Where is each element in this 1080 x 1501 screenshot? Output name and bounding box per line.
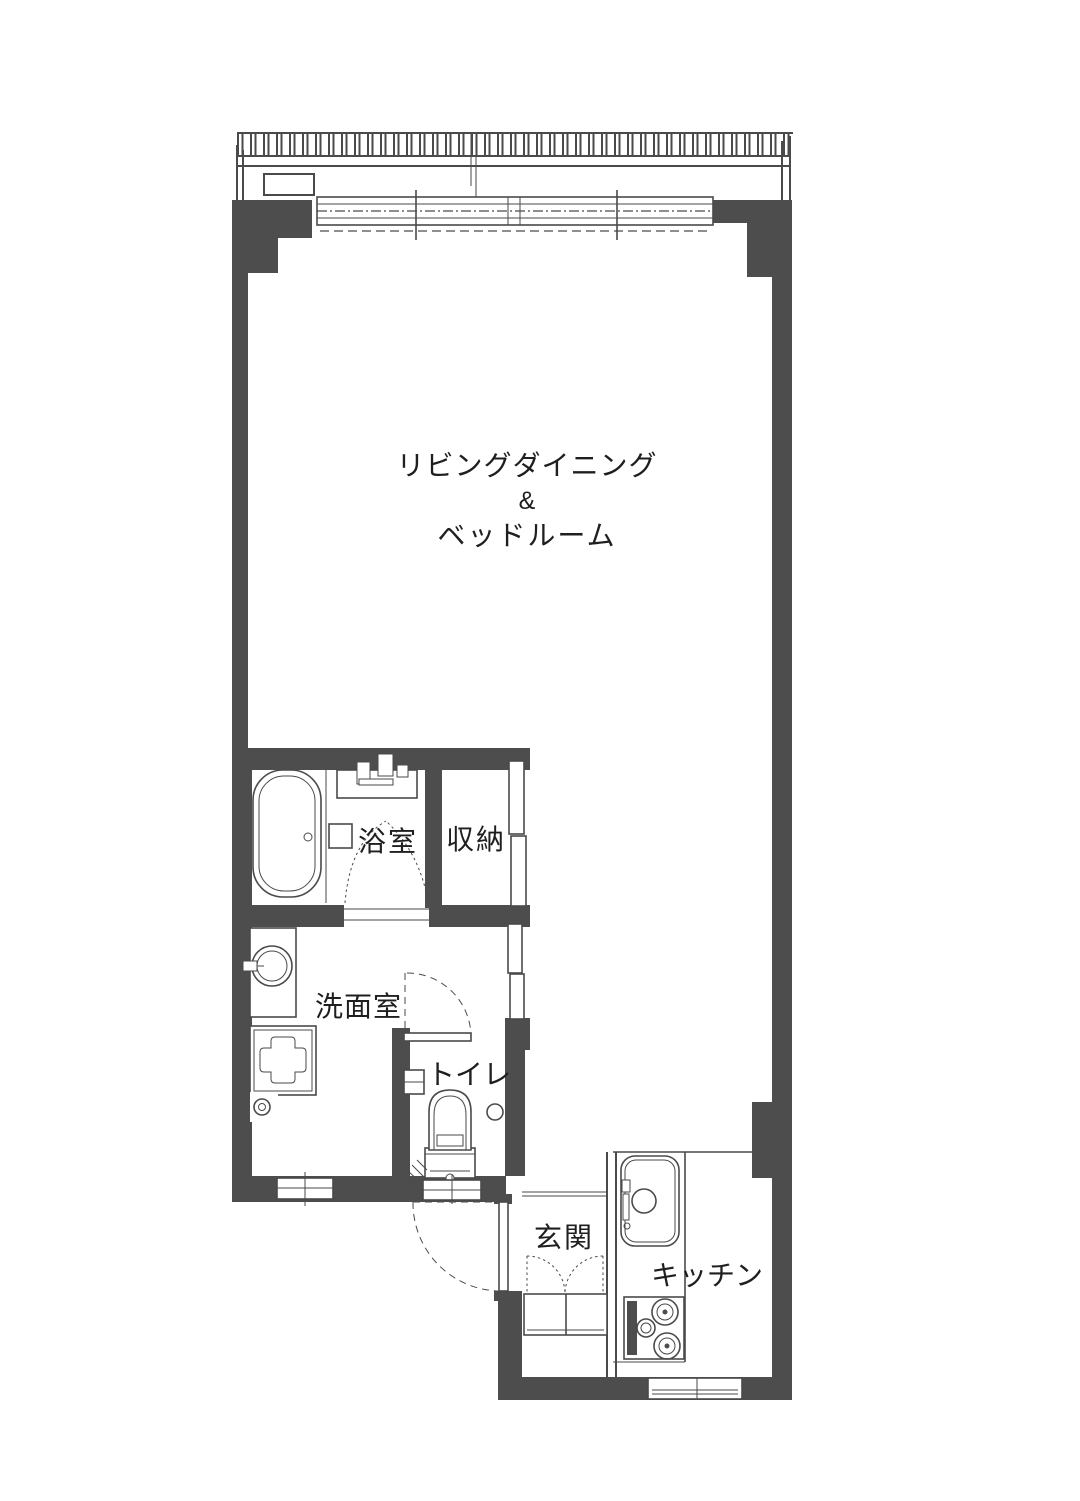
washing-machine-pan (250, 1026, 316, 1095)
storage-sliding-door (509, 761, 526, 906)
bathtub (253, 768, 326, 903)
room-label-toilet: トイレ (427, 1053, 511, 1093)
bath-stool (329, 824, 352, 848)
floor-drain (250, 1092, 278, 1122)
room-label-living: リビングダイニング & ベッドルーム (377, 448, 677, 554)
fixtures-layer (0, 0, 1080, 1501)
room-label-storage: 収納 (446, 818, 506, 858)
living-label-line2: & (377, 484, 677, 518)
room-label-bath: 浴室 (358, 820, 418, 860)
washroom-window (277, 1172, 333, 1206)
kitchen-bottom-cabinet (648, 1378, 742, 1399)
living-label-line1: リビングダイニング (377, 448, 677, 484)
kitchen-faucet (632, 1189, 656, 1213)
shoe-cabinet (524, 1256, 607, 1335)
room-label-kitchen: キッチン (651, 1254, 763, 1294)
room-label-entrance: 玄関 (534, 1216, 594, 1256)
toilet-door (404, 973, 471, 1041)
gas-stove (624, 1297, 684, 1359)
entrance-door (413, 1202, 508, 1291)
toilet (409, 1090, 475, 1182)
toilet-vent (487, 1104, 503, 1120)
kitchen-sink (621, 1156, 679, 1246)
bath-counter-faucet (337, 754, 417, 798)
living-label-line3: ベッドルーム (377, 518, 677, 554)
washbasin (243, 928, 296, 1017)
room-label-washroom: 洗面室 (315, 985, 402, 1025)
genkan-step (522, 1192, 606, 1196)
floor-plan: リビングダイニング & ベッドルーム 浴室 収納 洗面室 トイレ 玄関 キッチン (0, 0, 1080, 1501)
toilet-paper-holder (404, 1070, 424, 1094)
living-window (317, 134, 713, 240)
washroom-sliding-door (508, 924, 524, 1019)
